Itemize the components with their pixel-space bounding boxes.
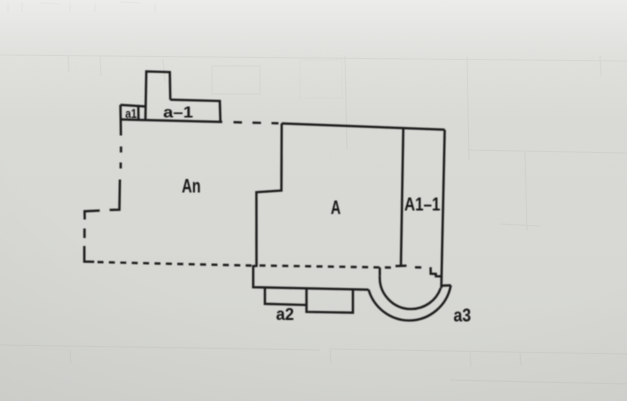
svg-text:a2: a2 bbox=[276, 304, 294, 324]
svg-text:a–1: a–1 bbox=[163, 104, 193, 121]
svg-text:a1: a1 bbox=[125, 106, 137, 121]
svg-text:a3: a3 bbox=[454, 305, 472, 326]
svg-text:An: An bbox=[182, 176, 201, 197]
svg-text:A: A bbox=[331, 197, 341, 219]
svg-text:A1–1: A1–1 bbox=[404, 193, 440, 214]
